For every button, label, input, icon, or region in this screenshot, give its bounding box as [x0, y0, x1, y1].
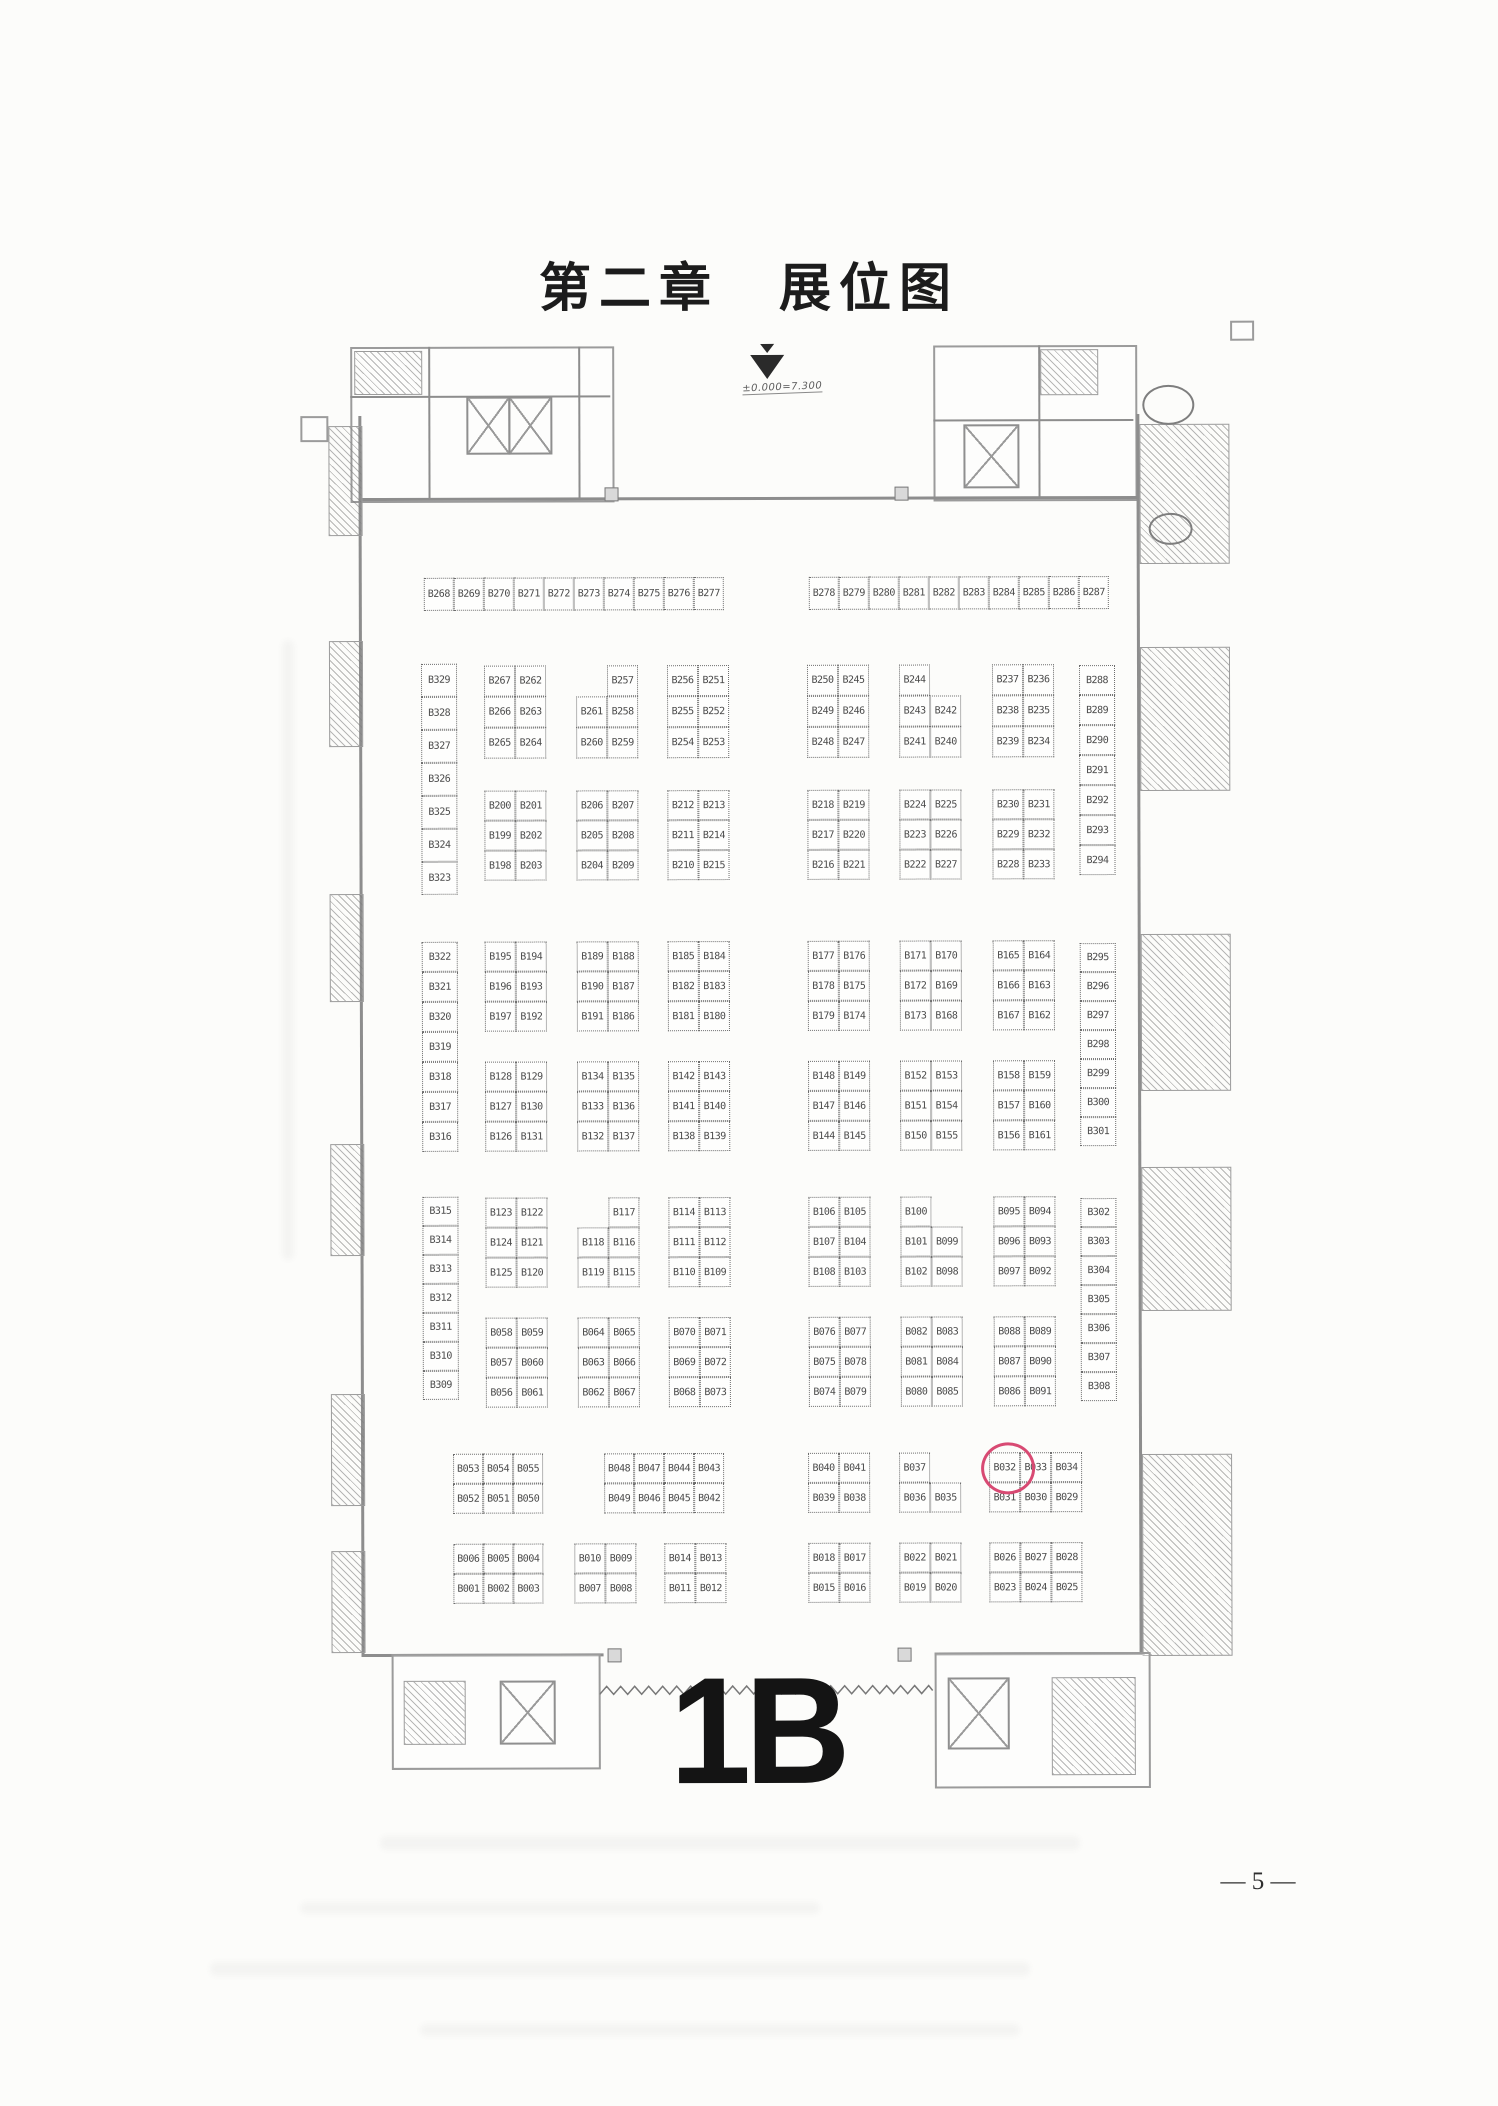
booth-B304: B304 — [1081, 1256, 1117, 1285]
booth-B072: B072 — [700, 1347, 731, 1377]
booth-B278: B278 — [809, 577, 839, 610]
booth-B080: B080 — [901, 1377, 932, 1407]
booth-island: B148B149B147B146B144B145 — [808, 1061, 870, 1151]
booth-island: B058B059B057B060B056B061 — [486, 1318, 548, 1408]
booth-B286: B286 — [1049, 576, 1079, 609]
booth-B194: B194 — [516, 942, 547, 972]
booth-B218: B218 — [807, 790, 838, 820]
right-wall-booths-2: B295B296B297B298B299B300B301 — [1080, 943, 1117, 1146]
booth-B151: B151 — [900, 1091, 931, 1121]
booth-island: B244B243B242B241B240 — [899, 664, 961, 757]
booth-B209: B209 — [607, 850, 638, 880]
booth-B074: B074 — [809, 1377, 840, 1407]
booth-B244: B244 — [899, 665, 930, 696]
service-box — [300, 416, 328, 442]
booth-B139: B139 — [699, 1121, 730, 1151]
booth-B242: B242 — [930, 695, 961, 726]
booth-B315: B315 — [422, 1197, 458, 1226]
booth-B090: B090 — [1025, 1346, 1056, 1376]
booth-B249: B249 — [807, 696, 838, 727]
booth-B309: B309 — [423, 1371, 459, 1400]
booth-B289: B289 — [1079, 695, 1115, 725]
booth-island: B257B261B258B260B259 — [576, 665, 638, 758]
booth-B165: B165 — [993, 940, 1024, 970]
scan-smudge — [300, 1902, 820, 1914]
booth-B127: B127 — [485, 1092, 516, 1122]
booth-B037: B037 — [899, 1453, 930, 1483]
booth-B323: B323 — [422, 862, 458, 895]
booth-B148: B148 — [808, 1061, 839, 1091]
stair-hatch — [1052, 1677, 1136, 1775]
booth-B007: B007 — [574, 1573, 605, 1603]
booth-island: B095B094B096B093B097B092 — [993, 1196, 1055, 1286]
stair-hatch — [331, 1551, 365, 1653]
booth-B079: B079 — [840, 1377, 871, 1407]
booth-B325: B325 — [421, 796, 457, 829]
booth-B015: B015 — [808, 1573, 839, 1603]
booth-B166: B166 — [993, 970, 1024, 1000]
booth-B154: B154 — [931, 1090, 962, 1120]
booth-B135: B135 — [608, 1061, 639, 1091]
right-wall-booths-1: B288B289B290B291B292B293B294 — [1079, 665, 1116, 875]
booth-B262: B262 — [515, 666, 546, 697]
booth-B329: B329 — [421, 664, 457, 697]
booth-B170: B170 — [931, 940, 962, 970]
booth-B318: B318 — [422, 1062, 458, 1092]
booth-B217: B217 — [807, 820, 838, 850]
booth-B067: B067 — [609, 1377, 640, 1407]
booth-B273: B273 — [574, 577, 604, 610]
booth-B009: B009 — [605, 1543, 636, 1573]
booth-B265: B265 — [484, 728, 515, 759]
stair-core — [1141, 1167, 1231, 1311]
booth-B197: B197 — [485, 1002, 516, 1032]
booth-B293: B293 — [1079, 815, 1115, 845]
booth-B303: B303 — [1080, 1227, 1116, 1256]
booth-B274: B274 — [604, 577, 634, 610]
booth-B292: B292 — [1079, 785, 1115, 815]
booth-B077: B077 — [840, 1317, 871, 1347]
wall-segment — [578, 346, 580, 498]
booth-B141: B141 — [668, 1091, 699, 1121]
booth-B206: B206 — [576, 790, 607, 820]
booth-island: B142B143B141B140B138B139 — [668, 1061, 730, 1151]
stair-core — [1140, 647, 1230, 791]
booth-B269: B269 — [454, 578, 484, 611]
booth-island: B022B021B019B020 — [899, 1542, 961, 1602]
booth-B013: B013 — [695, 1543, 726, 1573]
booth-B008: B008 — [605, 1573, 636, 1603]
booth-B161: B161 — [1024, 1120, 1055, 1150]
wall-post — [608, 1648, 622, 1662]
booth-B320: B320 — [422, 1002, 458, 1032]
booth-B297: B297 — [1080, 1001, 1116, 1030]
booth-B128: B128 — [485, 1062, 516, 1092]
booth-B248: B248 — [807, 727, 838, 758]
booth-B201: B201 — [515, 791, 546, 821]
booth-B070: B070 — [669, 1317, 700, 1347]
booth-B288: B288 — [1079, 665, 1115, 695]
booth-B017: B017 — [839, 1543, 870, 1573]
booth-B219: B219 — [838, 790, 869, 820]
booth-B186: B186 — [608, 1001, 639, 1031]
booth-B140: B140 — [699, 1091, 730, 1121]
booth-B157: B157 — [993, 1090, 1024, 1120]
booth-B094: B094 — [1024, 1196, 1055, 1226]
booth-B308: B308 — [1081, 1372, 1117, 1401]
booth-island: B200B201B199B202B198B203 — [484, 791, 546, 881]
booth-B130: B130 — [516, 1092, 547, 1122]
booth-B275: B275 — [634, 577, 664, 610]
booth-island: B189B188B190B187B191B186 — [577, 941, 639, 1031]
booth-island: B100B101B099B102B098 — [900, 1196, 962, 1286]
booth-island: B048B047B044B043B049B046B045B042 — [604, 1453, 724, 1513]
booth-B098: B098 — [932, 1256, 963, 1286]
booth-B221: B221 — [838, 850, 869, 880]
booth-B277: B277 — [694, 577, 724, 610]
booth-island: B040B041B039B038 — [808, 1453, 870, 1513]
booth-B005: B005 — [483, 1544, 513, 1574]
booth-B129: B129 — [516, 1062, 547, 1092]
elevation-note: ±0.000=7.300 — [742, 380, 822, 395]
left-wall-booths-3: B315B314B313B312B311B310B309 — [422, 1197, 459, 1400]
booth-B193: B193 — [516, 972, 547, 1002]
booth-B014: B014 — [664, 1543, 695, 1573]
booth-B189: B189 — [577, 941, 608, 971]
booth-island: B218B219B217B220B216B221 — [807, 790, 869, 880]
booth-B131: B131 — [516, 1122, 547, 1152]
booth-island: B171B170B172B169B173B168 — [900, 940, 962, 1030]
wall-segment — [428, 347, 430, 499]
booth-B078: B078 — [840, 1347, 871, 1377]
booth-B205: B205 — [576, 820, 607, 850]
booth-B047: B047 — [634, 1453, 664, 1483]
booth-B068: B068 — [669, 1377, 700, 1407]
booth-island: B064B065B063B066B062B067 — [578, 1317, 640, 1407]
booth-B317: B317 — [422, 1092, 458, 1122]
booth-island: B026B027B028B023B024B025 — [989, 1542, 1082, 1602]
booth-B051: B051 — [483, 1484, 513, 1514]
booth-B239: B239 — [992, 726, 1023, 757]
booth-B234: B234 — [1023, 726, 1054, 757]
booth-B132: B132 — [577, 1121, 608, 1151]
booth-B060: B060 — [517, 1348, 548, 1378]
booth-B118: B118 — [577, 1227, 608, 1257]
stair-hatch — [330, 1144, 364, 1256]
booth-B299: B299 — [1080, 1059, 1116, 1088]
booth-B122: B122 — [516, 1198, 547, 1228]
booth-B235: B235 — [1023, 695, 1054, 726]
service-box — [1230, 321, 1254, 341]
booth-island: B212B213B211B214B210B215 — [667, 790, 729, 880]
stair-core — [1139, 424, 1229, 564]
booth-highlight-circle — [981, 1442, 1035, 1494]
booth-B006: B006 — [453, 1544, 483, 1574]
booth-B055: B055 — [513, 1454, 543, 1484]
booth-B291: B291 — [1079, 755, 1115, 785]
booth-B216: B216 — [807, 850, 838, 880]
booth-B101: B101 — [900, 1227, 931, 1257]
booth-B313: B313 — [423, 1255, 459, 1284]
booth-B243: B243 — [899, 696, 930, 727]
booth-B023: B023 — [989, 1572, 1020, 1602]
booth-island: B018B017B015B016 — [808, 1543, 870, 1603]
booth-B211: B211 — [667, 820, 698, 850]
booth-B231: B231 — [1023, 789, 1054, 819]
strip-top-left: B268B269B270B271B272B273B274B275B276B277 — [424, 577, 724, 611]
booth-B287: B287 — [1079, 576, 1109, 609]
booth-B294: B294 — [1079, 845, 1115, 875]
booth-B241: B241 — [899, 727, 930, 758]
booth-island: B037B036B035 — [899, 1452, 961, 1512]
scan-smudge — [380, 1836, 1080, 1850]
booth-B203: B203 — [515, 851, 546, 881]
booth-B056: B056 — [486, 1378, 517, 1408]
booth-island: B206B207B205B208B204B209 — [576, 790, 638, 880]
booth-B238: B238 — [992, 695, 1023, 726]
booth-B195: B195 — [485, 942, 516, 972]
booth-island: B088B089B087B090B086B091 — [994, 1316, 1056, 1406]
booth-island: B250B245B249B246B248B247 — [807, 665, 869, 758]
booth-B295: B295 — [1080, 943, 1116, 972]
booth-B263: B263 — [515, 697, 546, 728]
column-ellipse — [1142, 385, 1194, 425]
booth-B052: B052 — [453, 1484, 483, 1514]
booth-B155: B155 — [931, 1120, 962, 1150]
booth-B062: B062 — [578, 1377, 609, 1407]
booth-B040: B040 — [808, 1453, 839, 1483]
booth-B225: B225 — [930, 789, 961, 819]
booth-B298: B298 — [1080, 1030, 1116, 1059]
booth-B091: B091 — [1025, 1376, 1056, 1406]
booth-B253: B253 — [698, 727, 729, 758]
booth-B276: B276 — [664, 577, 694, 610]
stair-hatch — [404, 1681, 466, 1745]
booth-B019: B019 — [899, 1573, 930, 1603]
booth-B102: B102 — [901, 1257, 932, 1287]
booth-B240: B240 — [930, 726, 961, 757]
booth-B236: B236 — [1023, 664, 1054, 695]
booth-B126: B126 — [485, 1122, 516, 1152]
booth-B267: B267 — [484, 666, 515, 697]
booth-B259: B259 — [607, 727, 638, 758]
booth-B156: B156 — [993, 1120, 1024, 1150]
booth-B220: B220 — [838, 820, 869, 850]
booth-B227: B227 — [930, 849, 961, 879]
booth-B180: B180 — [699, 1001, 730, 1031]
booth-B178: B178 — [808, 971, 839, 1001]
booth-B152: B152 — [900, 1061, 931, 1091]
booth-island: B128B129B127B130B126B131 — [485, 1062, 547, 1152]
booth-B284: B284 — [989, 576, 1019, 609]
booth-island: B195B194B196B193B197B192 — [485, 942, 547, 1032]
elevator-shaft-icon — [948, 1677, 1010, 1749]
booth-B185: B185 — [668, 941, 699, 971]
booth-B270: B270 — [484, 578, 514, 611]
scan-smudge — [210, 1962, 1030, 1976]
wall-post — [605, 487, 619, 501]
booth-B202: B202 — [515, 821, 546, 851]
booth-B215: B215 — [698, 850, 729, 880]
booth-B087: B087 — [994, 1346, 1025, 1376]
booth-B208: B208 — [607, 820, 638, 850]
booth-B003: B003 — [513, 1574, 543, 1604]
booth-B184: B184 — [699, 941, 730, 971]
booth-B064: B064 — [578, 1317, 609, 1347]
stair-hatch — [331, 1394, 365, 1506]
booth-B058: B058 — [486, 1318, 517, 1348]
booth-B314: B314 — [422, 1226, 458, 1255]
left-wall-booths-1: B329B328B327B326B325B324B323 — [421, 664, 458, 895]
booth-island: B256B251B255B252B254B253 — [667, 665, 729, 758]
booth-B036: B036 — [899, 1483, 930, 1513]
booth-B181: B181 — [668, 1001, 699, 1031]
floor-plan: ±0.000=7.300 B268B269B270B271B272B273B27… — [0, 0, 1498, 2106]
booth-B044: B044 — [664, 1453, 694, 1483]
booth-B049: B049 — [604, 1483, 634, 1513]
booth-B283: B283 — [959, 576, 989, 609]
booth-B232: B232 — [1023, 819, 1054, 849]
booth-B046: B046 — [634, 1483, 664, 1513]
booth-B002: B002 — [483, 1574, 513, 1604]
booth-B104: B104 — [839, 1227, 870, 1257]
booth-B018: B018 — [808, 1543, 839, 1573]
booth-B100: B100 — [900, 1197, 931, 1227]
booth-B324: B324 — [421, 829, 457, 862]
booth-B029: B029 — [1051, 1482, 1082, 1512]
booth-B210: B210 — [667, 850, 698, 880]
booth-B147: B147 — [808, 1091, 839, 1121]
booth-B326: B326 — [421, 763, 457, 796]
booth-B071: B071 — [700, 1317, 731, 1347]
booth-B081: B081 — [901, 1347, 932, 1377]
booth-B059: B059 — [517, 1318, 548, 1348]
booth-B254: B254 — [667, 727, 698, 758]
booth-B021: B021 — [930, 1542, 961, 1572]
column-ellipse — [1149, 513, 1193, 545]
booth-B075: B075 — [809, 1347, 840, 1377]
booth-island: B076B077B075B078B074B079 — [809, 1317, 871, 1407]
booth-B190: B190 — [577, 971, 608, 1001]
booth-B316: B316 — [422, 1122, 458, 1152]
booth-B082: B082 — [901, 1317, 932, 1347]
booth-island: B158B159B157B160B156B161 — [993, 1060, 1055, 1150]
booth-B004: B004 — [513, 1544, 543, 1574]
booth-B305: B305 — [1081, 1285, 1117, 1314]
booth-B028: B028 — [1051, 1542, 1082, 1572]
strip-top-right: B278B279B280B281B282B283B284B285B286B287 — [809, 576, 1109, 610]
booth-B096: B096 — [993, 1226, 1024, 1256]
right-wall-booths-3: B302B303B304B305B306B307B308 — [1080, 1198, 1117, 1401]
booth-B191: B191 — [577, 1001, 608, 1031]
booth-B117: B117 — [608, 1197, 639, 1227]
booth-B085: B085 — [932, 1376, 963, 1406]
booth-B095: B095 — [993, 1196, 1024, 1226]
booth-B250: B250 — [807, 665, 838, 696]
booth-B172: B172 — [900, 971, 931, 1001]
booth-B319: B319 — [422, 1032, 458, 1062]
booth-B280: B280 — [869, 577, 899, 610]
booth-B237: B237 — [992, 664, 1023, 695]
booth-B282: B282 — [929, 576, 959, 609]
booth-B034: B034 — [1051, 1452, 1082, 1482]
booth-B302: B302 — [1080, 1198, 1116, 1227]
booth-B120: B120 — [517, 1258, 548, 1288]
booth-B109: B109 — [700, 1257, 731, 1287]
booth-island: B106B105B107B104B108B103 — [808, 1197, 870, 1287]
booth-B150: B150 — [900, 1121, 931, 1151]
booth-island: B082B083B081B084B080B085 — [901, 1316, 963, 1406]
booth-B025: B025 — [1051, 1572, 1082, 1602]
booth-B281: B281 — [899, 577, 929, 610]
page-number: — 5 — — [1168, 1868, 1348, 1896]
booth-B312: B312 — [423, 1284, 459, 1313]
booth-B268: B268 — [424, 578, 454, 611]
booth-B108: B108 — [809, 1257, 840, 1287]
booth-B183: B183 — [699, 971, 730, 1001]
booth-B224: B224 — [899, 790, 930, 820]
booth-B115: B115 — [609, 1257, 640, 1287]
scan-smudge — [420, 2024, 1020, 2036]
booth-B111: B111 — [668, 1227, 699, 1257]
booth-B198: B198 — [484, 851, 515, 881]
booth-B045: B045 — [664, 1483, 694, 1513]
booth-B061: B061 — [517, 1378, 548, 1408]
booth-B226: B226 — [930, 819, 961, 849]
booth-island: B114B113B111B112B110B109 — [668, 1197, 730, 1287]
stair-core — [1141, 934, 1231, 1091]
booth-B192: B192 — [516, 1002, 547, 1032]
booth-B123: B123 — [485, 1198, 516, 1228]
booth-B093: B093 — [1024, 1226, 1055, 1256]
booth-B084: B084 — [932, 1346, 963, 1376]
booth-B053: B053 — [453, 1454, 483, 1484]
booth-B086: B086 — [994, 1376, 1025, 1406]
booth-B300: B300 — [1080, 1088, 1116, 1117]
booth-B175: B175 — [839, 971, 870, 1001]
booth-B176: B176 — [839, 941, 870, 971]
booth-B162: B162 — [1024, 1000, 1055, 1030]
stair-hatch — [329, 641, 363, 747]
booth-B011: B011 — [664, 1573, 695, 1603]
booth-B133: B133 — [577, 1091, 608, 1121]
booth-B214: B214 — [698, 820, 729, 850]
booth-B160: B160 — [1024, 1090, 1055, 1120]
booth-B290: B290 — [1079, 725, 1115, 755]
booth-B246: B246 — [838, 696, 869, 727]
booth-B164: B164 — [1024, 940, 1055, 970]
booth-B230: B230 — [992, 789, 1023, 819]
booth-B251: B251 — [698, 665, 729, 696]
booth-B039: B039 — [808, 1483, 839, 1513]
booth-B107: B107 — [808, 1227, 839, 1257]
booth-B145: B145 — [839, 1121, 870, 1151]
booth-B136: B136 — [608, 1091, 639, 1121]
booth-B063: B063 — [578, 1347, 609, 1377]
hall-label: 1B — [670, 1655, 845, 1807]
wall-segment — [1038, 345, 1040, 497]
booth-B149: B149 — [839, 1061, 870, 1091]
booth-B035: B035 — [930, 1482, 961, 1512]
booth-B188: B188 — [608, 941, 639, 971]
booth-island: B010B009B007B008 — [574, 1543, 636, 1603]
booth-B169: B169 — [931, 970, 962, 1000]
booth-B048: B048 — [604, 1453, 634, 1483]
booth-B016: B016 — [839, 1573, 870, 1603]
booth-B258: B258 — [607, 696, 638, 727]
booth-island: B123B122B124B121B125B120 — [485, 1198, 547, 1288]
booth-B099: B099 — [931, 1226, 962, 1256]
